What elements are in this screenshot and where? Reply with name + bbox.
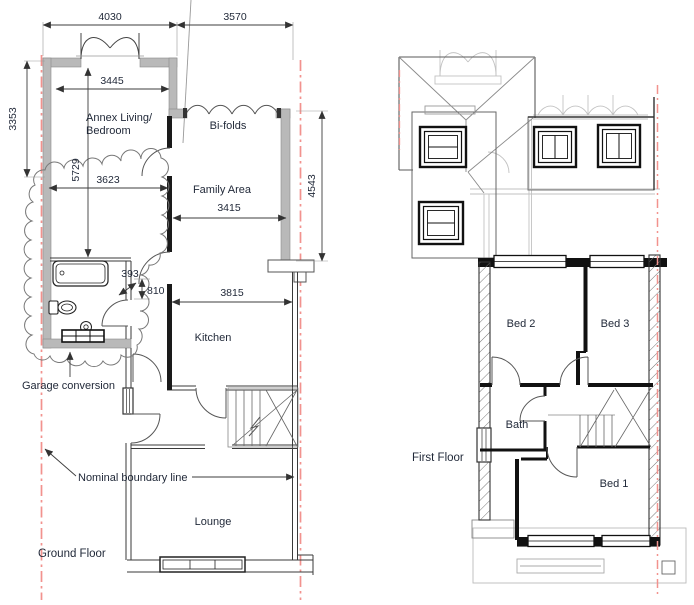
leader-line [183, 0, 191, 143]
front-wall [517, 536, 660, 547]
first-floor-label: First Floor [412, 452, 464, 464]
roof-window-icon [420, 127, 466, 167]
roof-window-icon [534, 127, 576, 167]
boundary-arrow-left [45, 449, 76, 476]
dim-4543-label: 4543 [306, 174, 318, 198]
room-label-bifolds: Bi-folds [210, 120, 247, 132]
stairs-icon [228, 388, 298, 447]
room-label-bed2: Bed 2 [507, 318, 536, 330]
room-label-bath: Bath [506, 419, 529, 431]
dim-5729-label: 5729 [70, 158, 82, 182]
dim-3415-label: 3415 [217, 202, 241, 214]
window-icon [590, 256, 644, 268]
dim-3353-label: 3353 [7, 107, 19, 131]
window-icon [528, 536, 594, 547]
corridor-wall [167, 116, 172, 390]
boundary-label: Nominal boundary line [78, 472, 187, 484]
room-label-kitchen: Kitchen [195, 332, 232, 344]
dim-3445-label: 3445 [100, 75, 124, 87]
internal-walls [50, 258, 313, 575]
wall-plinth-stub [294, 272, 306, 282]
room-label-bed1: Bed 1 [600, 478, 629, 490]
floor-plan-drawing: 4030 3570 3445 3353 5729 3623 3415 3815 … [0, 0, 694, 605]
french-doors-icon [76, 33, 144, 59]
roof-window-icon [419, 202, 463, 244]
roof-window-icon [598, 125, 640, 167]
bathtub-icon [53, 261, 108, 286]
annex-walls [43, 58, 290, 348]
rear-wall [478, 256, 667, 268]
room-label-bed3: Bed 3 [601, 318, 630, 330]
wall-plinth [268, 260, 314, 272]
bifold-doors-icon [183, 105, 281, 118]
dim-3570-label: 3570 [223, 11, 247, 23]
window-icon [602, 536, 650, 547]
room-label-annex-2: Bedroom [86, 125, 131, 137]
left-wall-hatched [479, 262, 490, 520]
floor-plan-page: 4030 3570 3445 3353 5729 3623 3415 3815 … [0, 0, 694, 605]
toilet-icon [49, 301, 76, 314]
left-wall-window-icon [477, 428, 491, 462]
ground-floor-plan: 4030 3570 3445 3353 5729 3623 3415 3815 … [7, 0, 328, 600]
hall-window-icon [123, 388, 133, 414]
roof-ridge-cap [425, 106, 475, 114]
garage-conversion-label: Garage conversion [22, 380, 115, 392]
dim-3815-label: 3815 [220, 287, 244, 299]
stairs-icon [548, 388, 651, 447]
dim-3623-label: 3623 [96, 174, 120, 186]
roof-hips [399, 57, 535, 193]
bay-window-icon [160, 557, 245, 572]
dim-4030-label: 4030 [98, 11, 122, 23]
dim-393-label: 393 [121, 268, 139, 280]
vanity-unit-icon [62, 330, 104, 342]
ground-floor-label: Ground Floor [38, 548, 106, 560]
room-label-annex-1: Annex Living/ [86, 112, 153, 124]
right-wall-hatched [649, 255, 660, 545]
window-icon [494, 256, 566, 268]
first-floor-partitions [480, 262, 653, 540]
dim-810-label: 810 [147, 285, 165, 297]
room-label-lounge: Lounge [195, 516, 232, 528]
first-floor-plan: Bed 2 Bed 3 Bath Bed 1 First Floor [399, 50, 686, 595]
room-label-family-area: Family Area [193, 184, 252, 196]
